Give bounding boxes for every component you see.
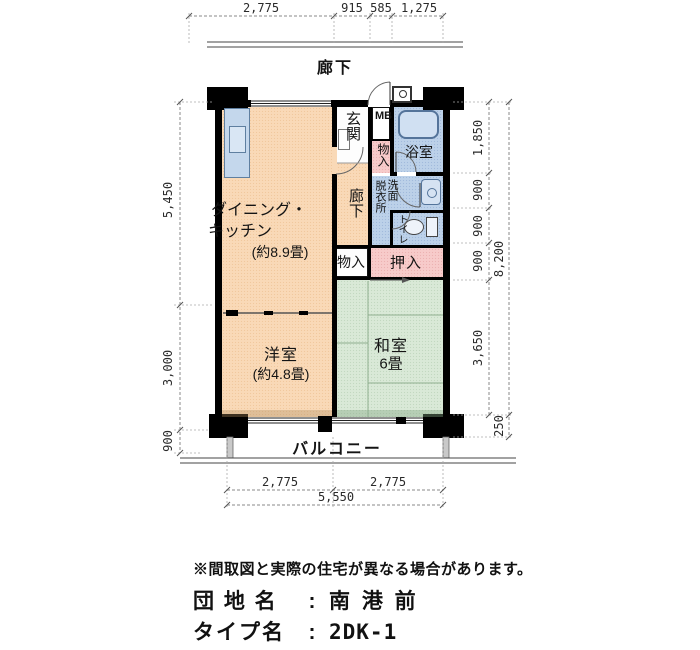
- wall-hall-right: [368, 107, 372, 248]
- estate-name-colon: :: [295, 590, 329, 614]
- column-bottom-right: [423, 414, 464, 438]
- estate-name-row: 団 地 名 : 南 港 前: [193, 585, 419, 615]
- japanese-room-size: 6畳: [379, 353, 402, 374]
- type-name-row: タイプ名 : 2DK-1: [193, 616, 397, 646]
- wall-closet-top: [337, 245, 443, 248]
- dim-left-1: 5,450: [161, 182, 175, 218]
- wall-right: [443, 100, 450, 424]
- dim-top-1: 2,775: [243, 1, 279, 15]
- balcony-label: バルコニー: [292, 435, 382, 459]
- wall-closet-bottom: [332, 277, 443, 280]
- dim-right-outer-1: 8,200: [492, 241, 506, 277]
- corridor-top-label: 廊下: [317, 54, 353, 78]
- estate-name-label: 団 地 名: [193, 585, 295, 615]
- wall-left: [215, 100, 222, 424]
- doorbell-circle-icon: [399, 90, 407, 98]
- futon-closet-label: 押入: [390, 252, 422, 273]
- disclaimer-note: ※間取図と実際の住宅が異なる場合があります。: [193, 558, 533, 579]
- column-top-right: [423, 87, 464, 110]
- wall-bottom: [215, 417, 450, 424]
- wall-closet-mid: [368, 248, 371, 277]
- meter-box-label: MB: [375, 110, 387, 123]
- dim-top-3: 585: [370, 1, 392, 15]
- storage-upper-label: 物入: [375, 143, 392, 167]
- dim-left-3: 900: [161, 430, 175, 452]
- floorplan-page: 廊下 ダイニング・ キッチン (約8.9畳) 玄関 MB 物入 浴室 廊下 脱衣…: [0, 0, 700, 650]
- dim-bottom-3: 5,550: [318, 490, 354, 504]
- dim-right-inner-4: 900: [471, 250, 485, 272]
- dim-bottom-1: 2,775: [262, 475, 298, 489]
- column-top-left: [207, 87, 248, 110]
- dk-label-size: (約8.9畳): [252, 242, 309, 262]
- wall-toilet-top: [390, 210, 443, 213]
- type-name-value: 2DK-1: [329, 620, 397, 644]
- wall-mb-bottom: [372, 139, 390, 141]
- dim-right-inner-1: 1,850: [471, 120, 485, 156]
- western-room-label: 洋室: [264, 341, 298, 365]
- bathtub-icon: [398, 110, 439, 139]
- wall-top: [215, 100, 450, 107]
- column-bottom-left: [209, 414, 248, 438]
- estate-name-value: 南 港 前: [329, 585, 419, 615]
- hallway-label: 廊下: [345, 188, 366, 218]
- bathroom-label: 浴室: [405, 142, 433, 162]
- washbasin-drain-icon: [427, 188, 437, 198]
- storage-lower-label: 物入: [337, 252, 365, 272]
- wall-toilet-left: [390, 213, 393, 248]
- dim-top-4: 1,275: [401, 1, 437, 15]
- dim-right-inner-2: 900: [471, 179, 485, 201]
- dim-left-2: 3,000: [161, 350, 175, 386]
- toilet-tank-icon: [426, 217, 438, 237]
- toilet-label: トイレ: [394, 214, 409, 244]
- dim-right-inner-3: 900: [471, 215, 485, 237]
- dim-top-2: 915: [341, 1, 363, 15]
- entrance-label: 玄関: [342, 111, 363, 141]
- wall-bath-bottom: [394, 172, 443, 176]
- type-name-label: タイプ名: [193, 616, 295, 646]
- washstand-label: 洗面: [384, 179, 400, 201]
- kitchen-sink-icon: [229, 126, 246, 153]
- dim-bottom-2: 2,775: [370, 475, 406, 489]
- western-room-size: (約4.8畳): [253, 364, 310, 384]
- type-name-colon: :: [295, 621, 329, 645]
- dim-right-inner-5: 3,650: [471, 330, 485, 366]
- dk-label-line2: キッチン: [208, 217, 272, 241]
- corridor-lines: [207, 42, 463, 47]
- dim-right-outer-2: 250: [492, 415, 506, 437]
